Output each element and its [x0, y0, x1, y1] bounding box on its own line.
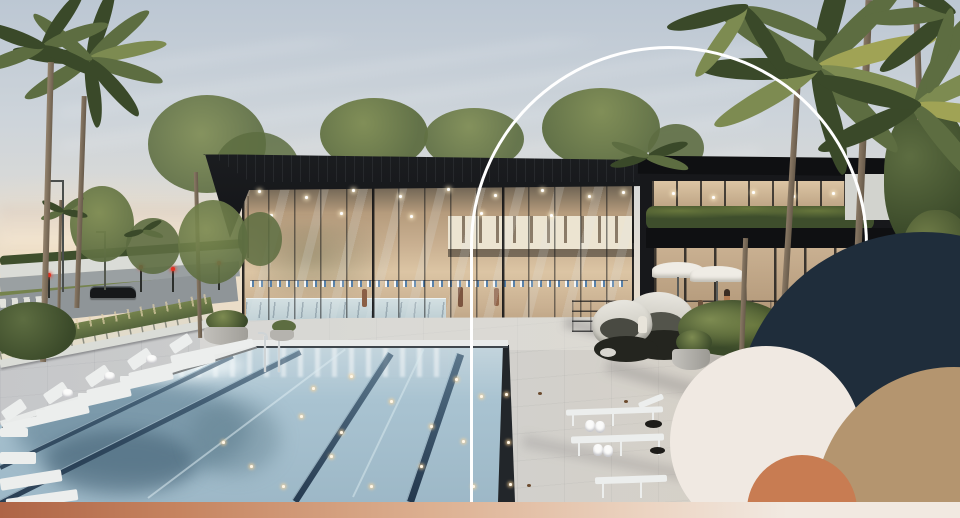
concrete-planter [270, 330, 294, 341]
ceiling-light-glint [447, 188, 450, 191]
water-sparkle [455, 378, 458, 381]
water-sparkle [462, 440, 465, 443]
hero-image [0, 0, 960, 518]
rolled-towel [146, 355, 157, 364]
side-table [0, 452, 36, 464]
ceiling-light-glint [352, 189, 355, 192]
pool-coping-far [248, 340, 508, 348]
water-sparkle [390, 400, 393, 403]
ceiling-light-glint [410, 215, 413, 218]
ceiling-light-glint [305, 196, 308, 199]
water-sparkle [340, 431, 343, 434]
water-sparkle [430, 425, 433, 428]
water-sparkle [350, 375, 353, 378]
ceiling-light-glint [258, 190, 261, 193]
water-sparkle [250, 465, 253, 468]
ceiling-light-glint [399, 195, 402, 198]
water-sparkle [370, 485, 373, 488]
water-sparkle [282, 485, 285, 488]
roadside-tree [238, 212, 282, 266]
rolled-towel [104, 372, 115, 381]
copper-gradient-bar [0, 502, 960, 518]
water-sparkle [222, 441, 225, 444]
street-lamp [62, 180, 64, 292]
traffic-signal [172, 270, 174, 292]
water-sparkle [300, 415, 303, 418]
car [90, 286, 136, 298]
ceiling-light-glint [340, 212, 343, 215]
traffic-signal [48, 276, 50, 298]
water-sparkle [420, 465, 423, 468]
side-table [120, 376, 135, 382]
side-table [0, 428, 28, 437]
tree-reflection [190, 400, 280, 475]
side-table [36, 410, 51, 416]
side-table [78, 393, 93, 399]
water-sparkle [312, 387, 315, 390]
water-sparkle [330, 455, 333, 458]
rolled-towel [62, 389, 73, 398]
